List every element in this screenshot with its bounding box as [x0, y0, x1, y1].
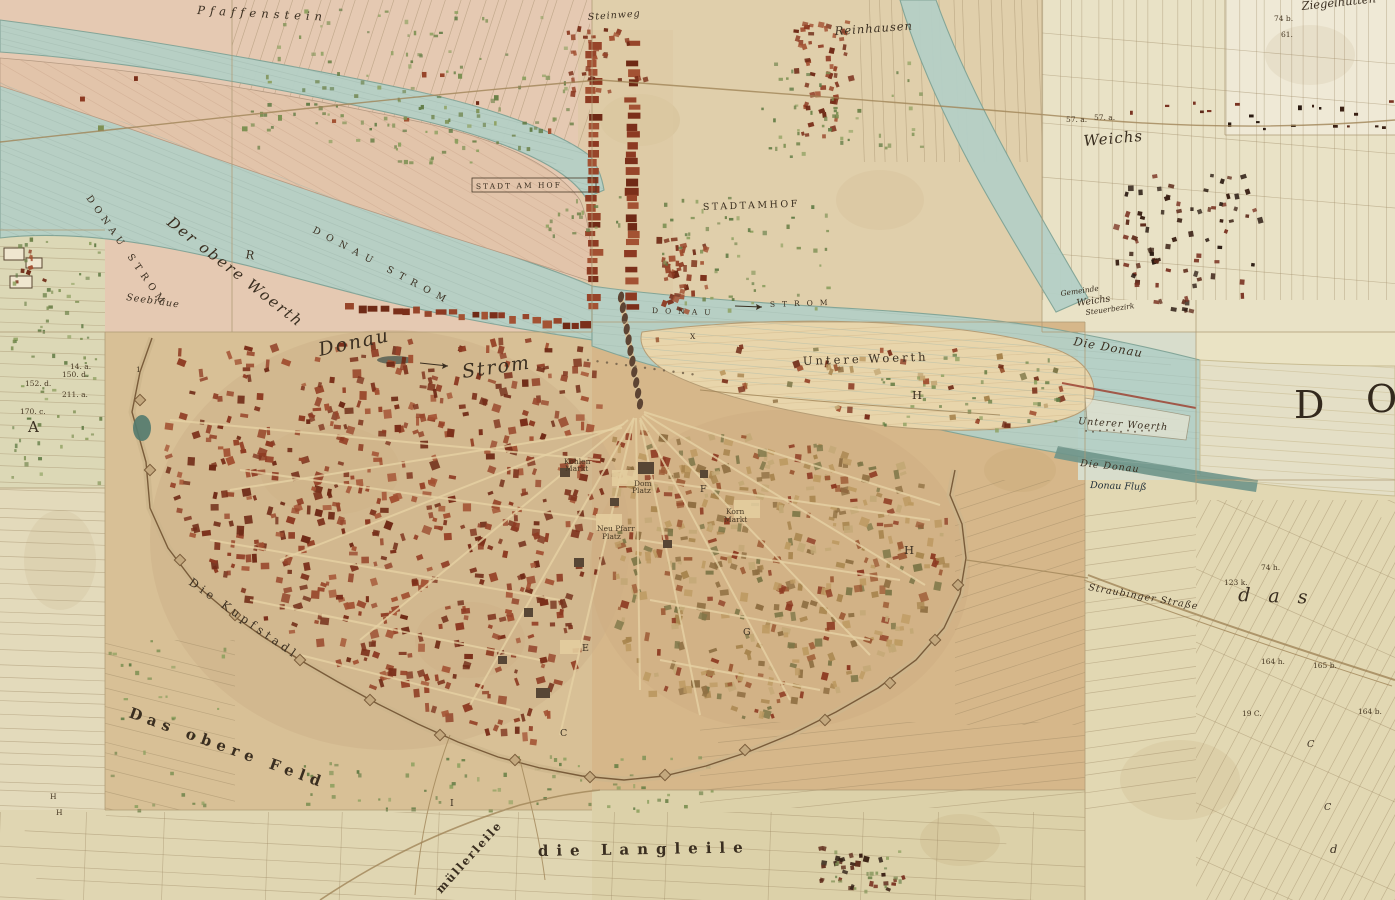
map-label-4: 74 b. — [1274, 14, 1293, 23]
map-label-5: 61. — [1281, 30, 1293, 39]
map-label-54: 164 h. — [1261, 657, 1285, 666]
map-label-59: C — [1324, 802, 1332, 813]
map-label-67: 1 — [136, 365, 141, 374]
map-label-6: 57. a. — [1066, 115, 1087, 124]
map-label-33: E — [582, 643, 589, 654]
map-label-58: C — [1307, 739, 1315, 750]
map-label-29: D — [1294, 383, 1324, 427]
map-label-68: H — [50, 792, 57, 801]
map-label-45: Platz — [602, 532, 621, 541]
map-label-32: F — [700, 484, 707, 495]
map-label-39: Markt — [565, 464, 588, 473]
map-label-60: d — [1330, 842, 1337, 856]
map-label-24: H — [912, 388, 922, 402]
map-label-51: das — [1238, 584, 1326, 609]
map-label-63: 150. d. — [62, 370, 88, 379]
map-label-37: I — [450, 798, 454, 809]
map-label-43: Markt — [724, 515, 747, 524]
map-label-69: H — [56, 808, 63, 817]
map-label-12: STADT AM HOF — [476, 181, 562, 191]
map-label-34: G — [743, 627, 751, 638]
map-label-36: C — [560, 728, 567, 739]
map-label-35: H — [904, 543, 914, 557]
map-label-30: O — [1366, 377, 1395, 421]
map-label-61: 211. a. — [62, 390, 88, 399]
map-label-7: 57. a. — [1094, 113, 1115, 122]
map-label-31: X — [690, 332, 696, 341]
map-label-52: 123 k. — [1224, 578, 1248, 587]
historical-map-canvas: PfaffensteinSteinwegReinhausenZiegelhütt… — [0, 0, 1395, 900]
map-label-55: 165 b. — [1313, 661, 1337, 670]
map-label-41: Platz — [632, 486, 651, 495]
historical-map-viewport[interactable]: PfaffensteinSteinwegReinhausenZiegelhütt… — [0, 0, 1395, 900]
map-label-48: die Langleile — [538, 838, 751, 860]
map-label-65: 170. c. — [20, 407, 46, 416]
map-label-53: 74 h. — [1261, 563, 1280, 572]
map-label-66: A — [27, 418, 39, 436]
map-label-64: 14. a. — [70, 362, 91, 371]
map-label-57: 19 C. — [1242, 709, 1262, 718]
map-label-56: 164 b. — [1358, 707, 1382, 716]
map-label-28: Donau Fluß — [1089, 480, 1147, 493]
map-label-62: 152. d. — [25, 379, 51, 388]
